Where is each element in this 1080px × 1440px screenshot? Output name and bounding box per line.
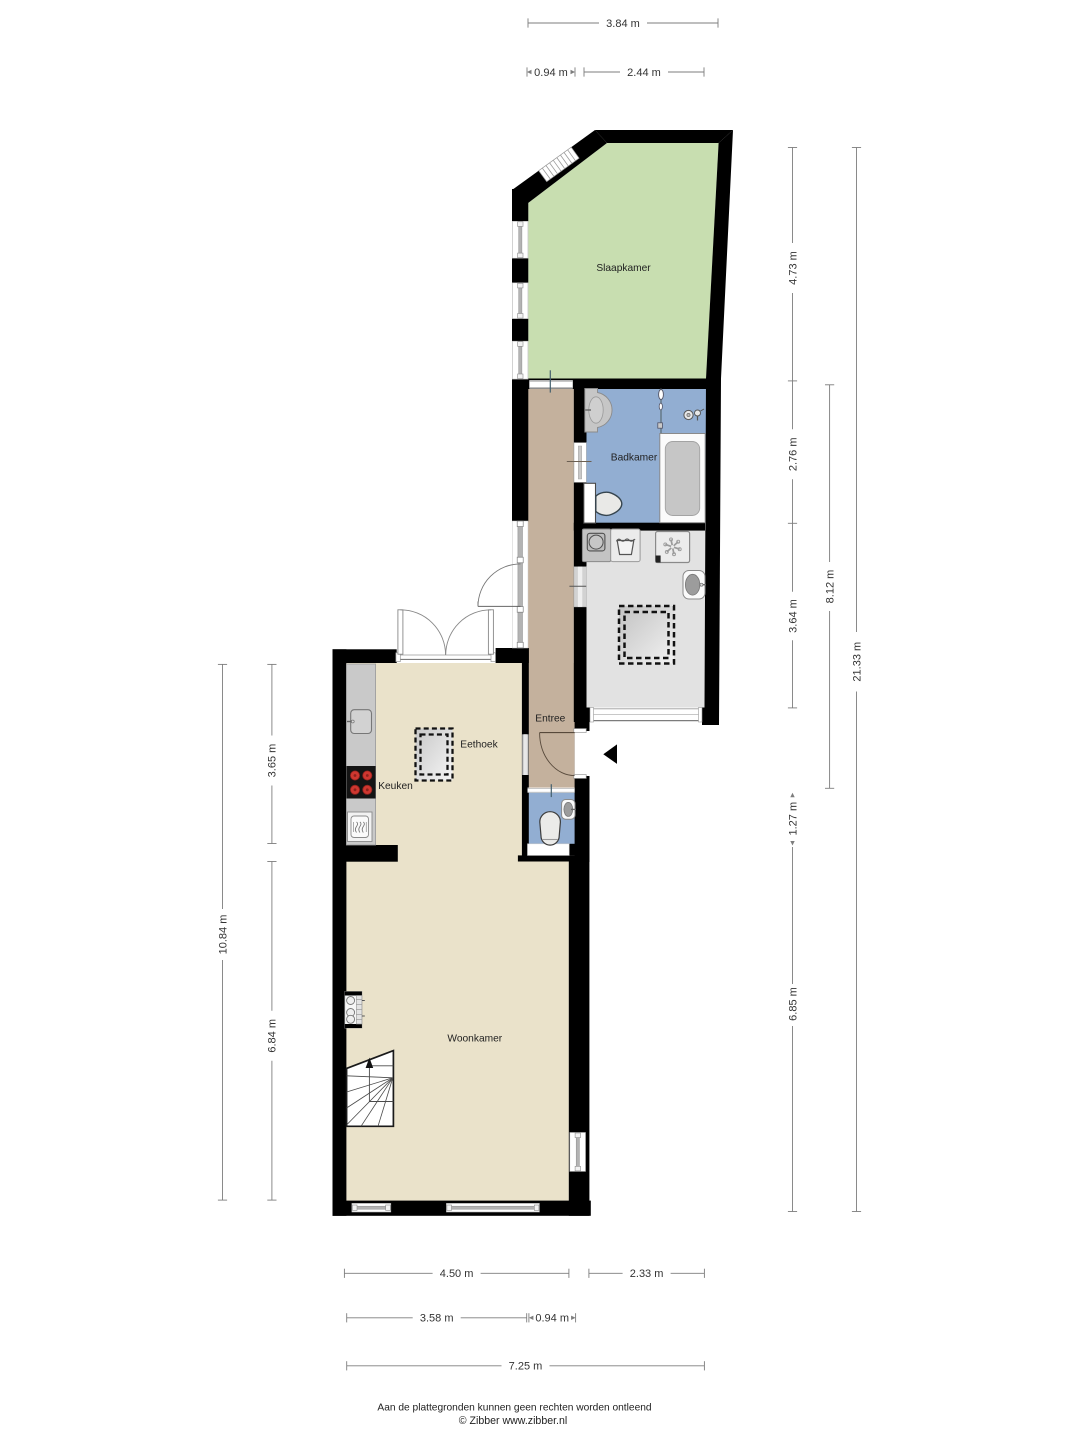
svg-text:2.76 m: 2.76 m (787, 437, 799, 471)
svg-text:Keuken: Keuken (378, 781, 413, 792)
svg-text:Eethoek: Eethoek (460, 740, 498, 751)
svg-text:2.33 m: 2.33 m (630, 1268, 664, 1280)
svg-text:Woonkamer: Woonkamer (447, 1034, 502, 1045)
svg-text:21.33 m: 21.33 m (851, 642, 863, 682)
svg-text:8.12 m: 8.12 m (824, 570, 836, 604)
svg-text:2.44 m: 2.44 m (627, 67, 661, 79)
svg-text:4.50 m: 4.50 m (440, 1268, 474, 1280)
svg-text:10.84 m: 10.84 m (217, 915, 229, 955)
svg-text:© Zibber www.zibber.nl: © Zibber www.zibber.nl (459, 1415, 568, 1427)
svg-text:3.84 m: 3.84 m (606, 18, 640, 30)
svg-text:0.94 m: 0.94 m (534, 67, 568, 79)
svg-text:1.27 m: 1.27 m (787, 802, 799, 836)
svg-text:3.58 m: 3.58 m (420, 1313, 454, 1325)
svg-text:3.64 m: 3.64 m (787, 599, 799, 633)
svg-text:4.73 m: 4.73 m (787, 251, 799, 285)
svg-text:Badkamer: Badkamer (611, 453, 658, 464)
svg-text:Slaapkamer: Slaapkamer (596, 263, 651, 274)
svg-text:3.65 m: 3.65 m (267, 744, 279, 778)
svg-text:7.25 m: 7.25 m (509, 1361, 543, 1373)
svg-text:0.94 m: 0.94 m (535, 1313, 569, 1325)
svg-text:6.85 m: 6.85 m (787, 987, 799, 1021)
svg-text:Entree: Entree (535, 714, 565, 725)
svg-text:Aan de plattegronden kunnen ge: Aan de plattegronden kunnen geen rechten… (377, 1403, 651, 1414)
svg-text:6.84 m: 6.84 m (267, 1019, 279, 1053)
